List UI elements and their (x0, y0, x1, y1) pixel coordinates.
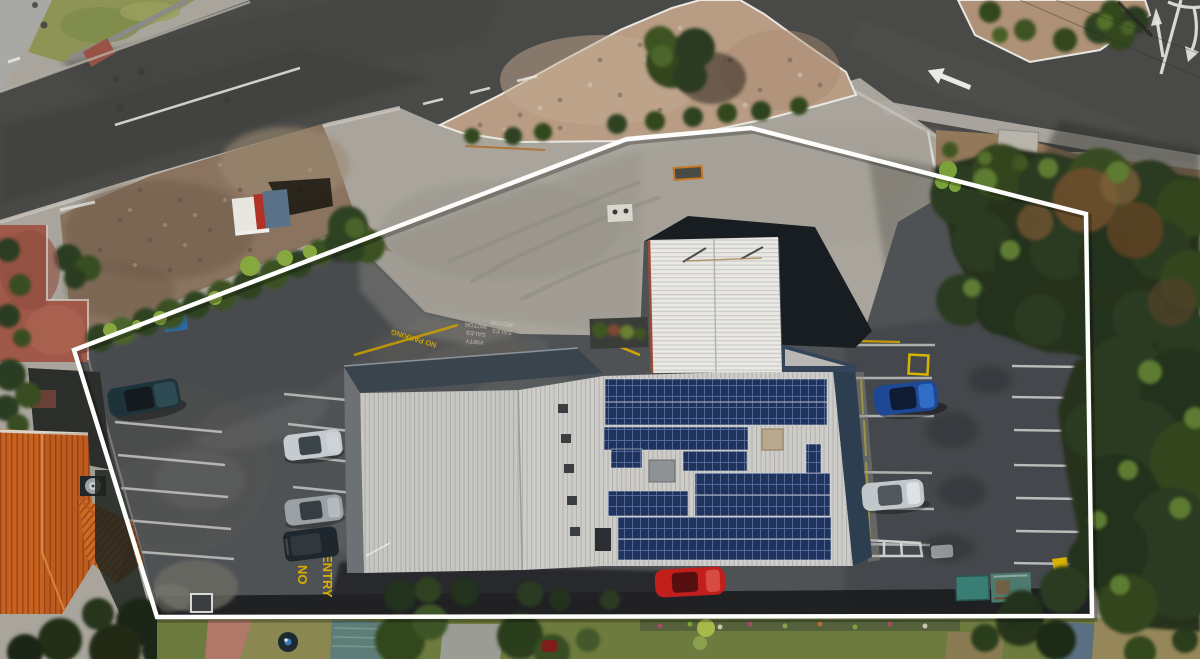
svg-text:ENTRY: ENTRY (320, 554, 335, 598)
svg-text:NO: NO (295, 565, 310, 585)
